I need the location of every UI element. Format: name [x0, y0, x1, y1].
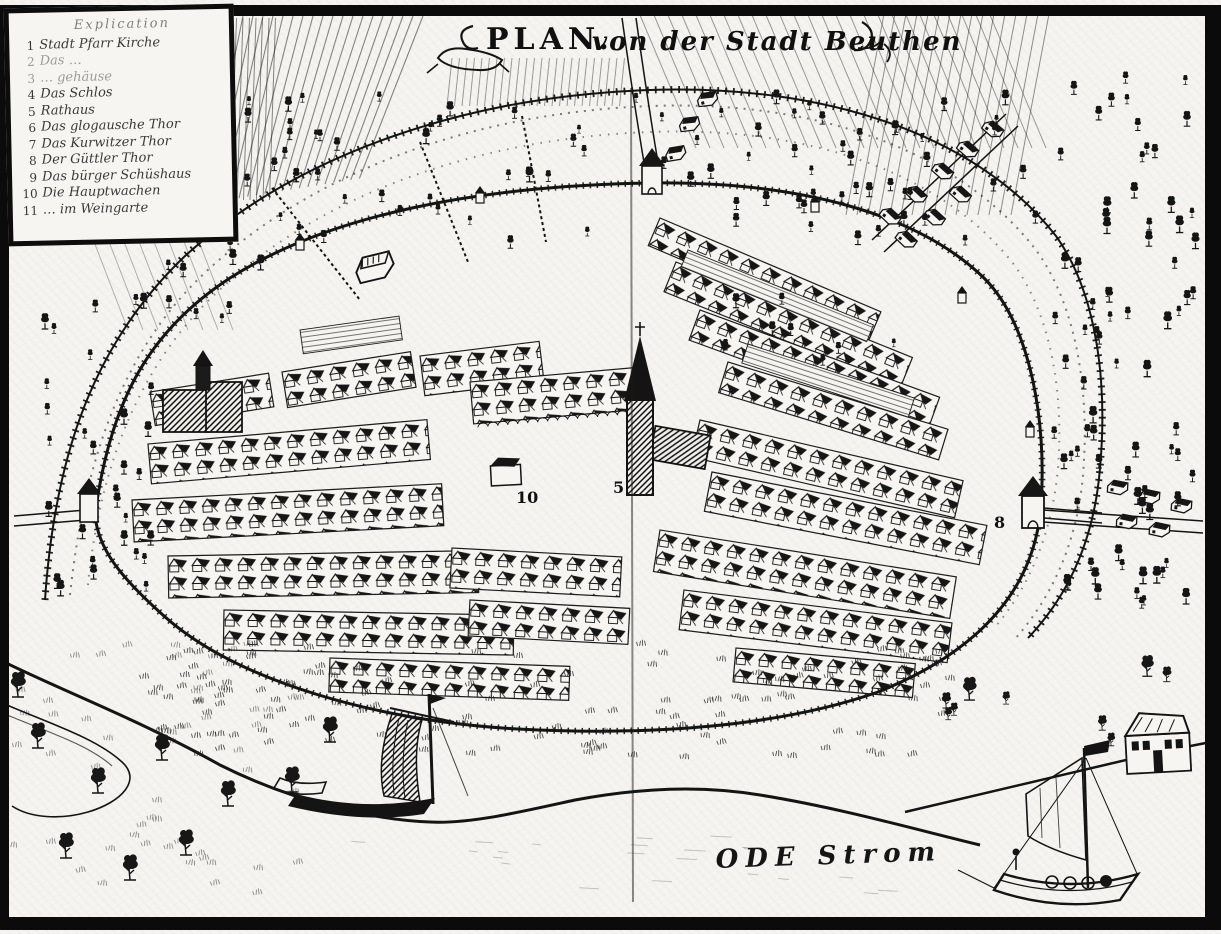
water-ripple [475, 842, 493, 843]
grass-tuft [139, 672, 148, 678]
tree-icon [1051, 426, 1057, 438]
tree-icon [1095, 106, 1102, 120]
tree-icon [1090, 425, 1098, 440]
tree-icon [1060, 453, 1068, 468]
hatch-line [967, 14, 1005, 215]
big-tree-icon [31, 722, 46, 748]
grass-tuft [164, 843, 173, 849]
tree-icon [507, 235, 513, 248]
hatch-line [342, 16, 403, 181]
tree-icon [296, 224, 301, 235]
tree-icon [134, 548, 139, 559]
water-ripple [498, 851, 508, 852]
numeral-8: 8 [994, 513, 1005, 532]
grass-tuft [46, 838, 55, 844]
grass-tuft [181, 722, 191, 729]
grass-tuft [552, 723, 561, 730]
grass-tuft [314, 669, 323, 675]
tree-icon [114, 492, 121, 507]
grass-tuft [289, 721, 298, 727]
tree-icon [922, 213, 928, 225]
tree-icon [379, 189, 385, 201]
big-tree-icon [323, 716, 338, 742]
big-tree-icon [123, 854, 138, 880]
tree-icon [819, 111, 825, 124]
grass-tuft [256, 685, 266, 692]
hatch-line [522, 58, 527, 106]
tree-icon [1125, 307, 1131, 319]
tree-icon [88, 349, 93, 359]
tree-icon [244, 174, 250, 186]
grass-tuft [276, 705, 286, 712]
grass-tuft [466, 749, 476, 756]
grass-tuft [229, 731, 239, 738]
tree-icon [577, 125, 581, 133]
tree-icon [144, 421, 152, 436]
tree-icon [321, 230, 327, 243]
tree-icon [1114, 358, 1119, 367]
grass-tuft [12, 741, 21, 747]
big-tree-icon [91, 767, 106, 793]
tree-icon [1151, 144, 1158, 158]
tree-icon [133, 294, 138, 305]
grass-tuft [152, 796, 161, 802]
grass-tuft [704, 696, 714, 703]
hatch-line [455, 58, 460, 106]
grass-tuft [656, 708, 665, 715]
grass-tuft [264, 737, 274, 744]
water-ripple [684, 850, 706, 851]
grass-tuft [534, 732, 544, 739]
hatch-line [359, 16, 423, 178]
grass-tuft [677, 721, 686, 727]
tree-icon [166, 259, 171, 269]
tree-icon [1123, 71, 1129, 83]
tree-icon [857, 128, 863, 140]
grass-tuft [252, 888, 262, 895]
tree-icon [1075, 446, 1080, 457]
tree-icon [1190, 286, 1196, 299]
tree-icon [1058, 147, 1064, 159]
city-blocks [132, 218, 987, 700]
tree-icon [1183, 75, 1188, 84]
hatch-line [620, 58, 625, 106]
hatch-line [351, 16, 413, 180]
tree-icon [1125, 94, 1130, 104]
tree-icon [506, 169, 511, 179]
tree-icon [90, 441, 97, 454]
tree-icon [147, 530, 154, 545]
big-tree-icon [179, 829, 194, 855]
tree-icon [839, 191, 845, 202]
grass-tuft [195, 849, 205, 856]
legend-box: Explication 1Stadt Pfarr Kirche 2Das … 3… [4, 4, 239, 247]
tree-icon [920, 133, 924, 141]
tree-icon [941, 97, 948, 110]
grass-tuft [866, 747, 876, 754]
tree-icon [570, 134, 576, 147]
grass-tuft [103, 734, 112, 741]
tree-icon [446, 101, 453, 116]
grass-tuft [875, 750, 884, 756]
tree-icon [707, 163, 714, 178]
tree-icon [1191, 232, 1199, 248]
tree-icon [733, 213, 740, 226]
big-tree-icon [1003, 691, 1010, 704]
tree-icon [1183, 111, 1191, 126]
grass-tuft [700, 731, 710, 738]
tree-icon [581, 145, 586, 156]
tree-icon [278, 212, 282, 220]
grass-tuft [218, 684, 228, 691]
hatch-line [1011, 14, 1049, 215]
grass-tuft [199, 854, 209, 861]
hatch-line [485, 58, 490, 106]
tree-icon [285, 96, 292, 111]
big-tree-icon [942, 692, 951, 708]
grass-tuft [271, 695, 281, 702]
hatch-line [575, 58, 580, 106]
grass-tuft [205, 680, 215, 687]
tree-icon [1182, 588, 1190, 604]
market-guardhouse [490, 456, 521, 486]
tree-icon [120, 530, 128, 545]
hatch-line [334, 16, 393, 183]
grass-tuft [315, 662, 325, 669]
tree-icon [1020, 165, 1027, 179]
tree-icon [47, 436, 52, 445]
tree-icon [334, 137, 341, 150]
tree-icon [44, 378, 49, 388]
hatch-line [470, 58, 475, 106]
tree-icon [90, 564, 97, 579]
tree-icon [1132, 442, 1140, 457]
tree-icon [1071, 81, 1078, 95]
hatch-line [612, 58, 617, 106]
tree-icon [1138, 497, 1146, 513]
legend-item: 11… im Weingarte [23, 198, 229, 219]
grass-tuft [152, 815, 161, 821]
grass-tuft [715, 711, 724, 718]
tree-icon [853, 182, 859, 194]
river-label: ODE Strom [715, 837, 942, 875]
grass-tuft [207, 859, 216, 865]
tree-icon [422, 128, 430, 144]
water-ripple [532, 844, 540, 845]
grass-tuft [370, 701, 380, 708]
tree-icon [1175, 448, 1181, 460]
tree-icon [1032, 210, 1038, 223]
tree-icon [1002, 90, 1010, 105]
grass-tuft [172, 652, 181, 658]
grass-tuft [147, 814, 156, 820]
tree-icon [923, 152, 930, 167]
tree-icon [747, 152, 751, 161]
tree-icon [166, 295, 172, 308]
tree-icon [257, 254, 265, 269]
tree-icon [1103, 217, 1111, 234]
water-ripple [627, 853, 644, 854]
tree-icon [807, 100, 812, 110]
big-tree-icon [221, 780, 236, 806]
tree-icon [840, 140, 846, 151]
tree-icon [247, 96, 251, 105]
grass-tuft [215, 699, 225, 706]
grass-tuft [608, 706, 618, 713]
numeral-5: 5 [613, 478, 624, 497]
tree-icon [763, 191, 770, 206]
grass-tuft [98, 879, 108, 886]
tree-icon [41, 313, 49, 329]
grass-tuft [263, 706, 272, 712]
tree-icon [876, 225, 882, 236]
grass-tuft [945, 674, 954, 681]
grass-tuft [106, 844, 116, 851]
fold-line [631, 88, 633, 902]
grass-tuft [180, 671, 189, 677]
grass-tuft [258, 726, 268, 733]
tree-icon [1184, 290, 1191, 305]
tree-icon [1167, 196, 1175, 212]
tree-icon [121, 460, 128, 474]
tree-icon [847, 150, 854, 164]
tree-icon [1146, 218, 1152, 230]
grass-tuft [171, 641, 181, 648]
tree-icon [1089, 406, 1097, 423]
grass-tuft [167, 654, 176, 660]
numeral-10: 10 [516, 488, 538, 507]
grass-tuft [197, 673, 206, 680]
grass-tuft [821, 744, 830, 750]
water-ripple [878, 890, 898, 891]
tree-icon [1130, 182, 1138, 198]
tree-icon [1135, 118, 1141, 131]
grass-tuft [184, 647, 193, 653]
tree-icon [1173, 422, 1179, 435]
tree-icon [990, 178, 996, 191]
tree-icon [1172, 257, 1178, 268]
grass-tuft [680, 753, 689, 760]
grass-tuft [193, 647, 203, 654]
tree-icon [435, 204, 440, 214]
grass-tuft [8, 841, 17, 848]
big-tree-icon [1163, 666, 1172, 681]
grass-tuft [254, 864, 263, 871]
tree-icon [1105, 287, 1113, 302]
hatch-line [597, 58, 602, 106]
water-ripple [778, 878, 789, 879]
parish-church [624, 322, 711, 495]
tree-icon [1091, 567, 1099, 584]
tree-icon [1144, 142, 1150, 154]
east-gate [1018, 476, 1102, 528]
barn [352, 248, 397, 287]
tree-icon [51, 323, 56, 333]
tree-icon [1090, 298, 1096, 309]
tree-icon [317, 129, 323, 140]
grass-tuft [293, 858, 303, 865]
tree-icon [82, 428, 87, 438]
tree-icon [755, 122, 762, 136]
tree-icon [892, 338, 896, 346]
grass-tuft [141, 839, 151, 846]
tree-icon [512, 107, 518, 119]
hatch-line [325, 16, 383, 184]
grass-tuft [137, 821, 146, 828]
water-ripple [351, 841, 365, 842]
water-ripple [501, 863, 509, 864]
hatch-line [477, 58, 482, 106]
tree-icon [180, 263, 187, 277]
grass-tuft [49, 710, 58, 716]
tree-icon [1175, 215, 1184, 232]
grass-tuft [658, 649, 668, 656]
grass-tuft [82, 715, 91, 721]
grass-tuft [514, 652, 523, 658]
grass-tuft [167, 728, 177, 735]
grass-tuft [788, 752, 797, 758]
tree-icon [300, 93, 305, 102]
grass-tuft [463, 713, 472, 719]
grass-tuft [203, 669, 213, 676]
tree-icon [695, 135, 700, 145]
grass-tuft [491, 745, 500, 751]
big-tree-icon [950, 702, 957, 715]
hatch-line [978, 14, 1016, 215]
grass-tuft [234, 746, 243, 752]
grass-tuft [96, 650, 106, 657]
grass-tuft [210, 878, 220, 885]
grass-tuft [177, 682, 187, 689]
castle [163, 350, 242, 432]
grass-tuft [76, 866, 86, 873]
big-tree-icon [1141, 655, 1153, 676]
grass-tuft [305, 715, 314, 721]
west-gate [77, 478, 101, 522]
water-ripple [839, 877, 853, 878]
big-tree-icon [963, 677, 977, 700]
tree-icon [1108, 311, 1113, 321]
tree-icon [144, 581, 149, 591]
grass-tuft [44, 697, 53, 703]
tree-icon [1082, 324, 1087, 334]
grass-tuft [70, 651, 79, 657]
tree-icon [244, 107, 251, 122]
grass-tuft [243, 766, 253, 773]
tree-icon [226, 301, 232, 313]
engraved-city-plan: 10 5 8 PLAN. von der Stadt Beuthen ODE S… [0, 0, 1221, 934]
big-tree-icon [59, 832, 74, 858]
tree-icon [315, 168, 321, 180]
grass-tuft [716, 737, 726, 744]
tree-icon [1176, 306, 1181, 316]
grass-tuft [186, 858, 196, 865]
grass-tuft [762, 695, 771, 701]
tree-icon [1190, 208, 1195, 218]
grass-tuft [215, 744, 225, 751]
tree-icon [1145, 231, 1153, 247]
tree-icon [1115, 544, 1123, 560]
grass-tuft [419, 745, 428, 752]
grass-tuft [585, 707, 595, 714]
tree-icon [1142, 595, 1147, 605]
grass-tuft [661, 696, 670, 702]
tree-icon [585, 227, 590, 236]
big-tree-icon [155, 734, 170, 760]
title-rest: von der Stadt Beuthen [592, 27, 963, 57]
tree-icon [343, 194, 348, 203]
tree-icon [1094, 583, 1102, 599]
grass-tuft [215, 730, 224, 736]
farmhouse-across-river [1124, 711, 1191, 774]
tree-icon [1160, 566, 1165, 577]
tree-icon [733, 197, 739, 210]
hatch-line [582, 58, 587, 106]
grass-tuft [833, 727, 842, 734]
tree-icon [809, 165, 813, 174]
water-ripple [493, 857, 503, 858]
tree-icon [1095, 454, 1102, 468]
grass-tuft [252, 721, 262, 728]
grass-tuft [164, 693, 173, 700]
tree-icon [142, 553, 147, 563]
hatch-line [270, 18, 276, 200]
hatch-line [462, 58, 467, 106]
hatch-line [507, 58, 512, 106]
big-tree-icon [11, 671, 26, 697]
tree-icon [136, 468, 142, 480]
tree-icon [719, 108, 724, 117]
grass-tuft [250, 705, 259, 712]
grass-tuft [907, 750, 917, 757]
tree-icon [287, 128, 293, 140]
tree-icon [963, 235, 968, 245]
tree-icon [220, 313, 225, 322]
grass-tuft [122, 641, 132, 648]
grass-tuft [857, 729, 866, 736]
grass-tuft [303, 667, 313, 674]
water-ripple [469, 851, 478, 852]
grass-tuft [46, 749, 56, 756]
tree-icon [902, 188, 908, 199]
tree-icon [1143, 360, 1151, 377]
hatch-line [605, 58, 610, 106]
grass-tuft [130, 830, 140, 837]
grass-tuft [581, 741, 591, 748]
tree-icon [282, 147, 288, 158]
tree-icon [1134, 587, 1140, 598]
grass-tuft [214, 691, 224, 698]
tree-icon [808, 221, 813, 231]
water-ripple [748, 874, 758, 875]
hatch-line [299, 16, 353, 188]
tree-icon [1061, 252, 1069, 268]
water-ripple [711, 836, 732, 837]
tree-icon [92, 299, 98, 311]
tree-icon [1124, 466, 1131, 480]
tree-icon [887, 178, 893, 191]
cargo-barge [274, 694, 468, 818]
grass-tuft [717, 655, 726, 662]
water-ripple [579, 888, 599, 889]
title-cartouche: PLAN. von der Stadt Beuthen [427, 22, 963, 73]
big-tree-icon [1098, 715, 1107, 730]
grass-tuft [876, 732, 886, 739]
water-ripple [677, 858, 697, 859]
tree-icon [660, 112, 664, 121]
tree-icon [1139, 566, 1148, 583]
tree-icon [1108, 93, 1115, 107]
